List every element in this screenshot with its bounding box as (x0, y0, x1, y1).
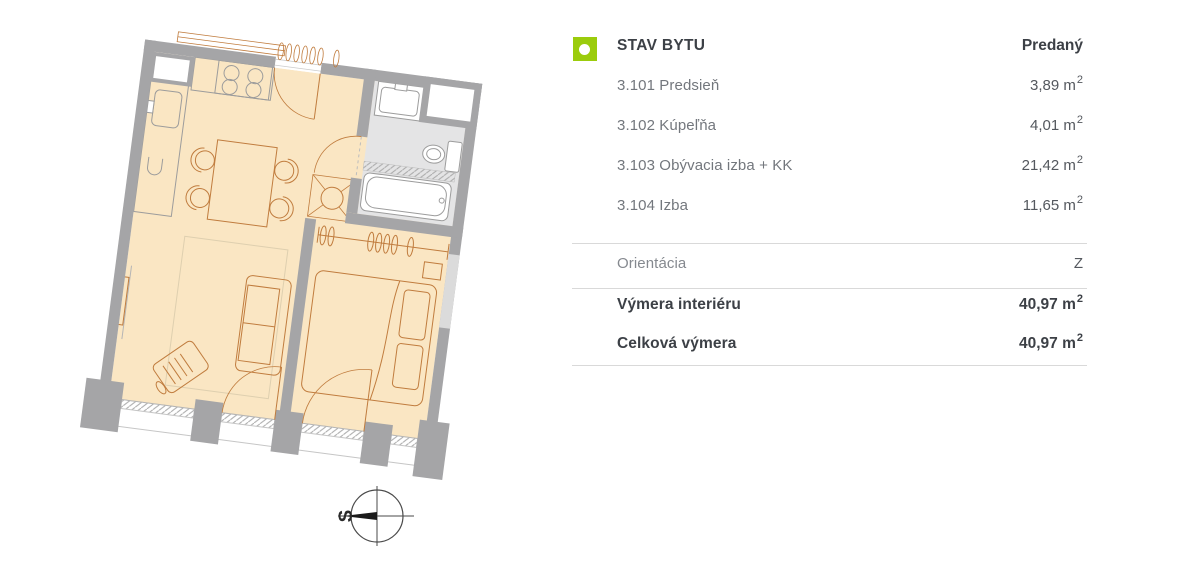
status-label: STAV BYTU (617, 37, 705, 55)
status-dot-icon (579, 44, 590, 55)
interior-area-value: 40,97 m2 (1019, 296, 1083, 314)
interior-area-label: Výmera interiéru (617, 296, 741, 314)
compass-label: S (336, 510, 357, 523)
total-area-value: 40,97 m2 (1019, 335, 1083, 353)
compass-icon: S (336, 486, 414, 546)
room-area: 21,42 m2 (1022, 157, 1083, 174)
room-label: 3.103 Obývacia izba + KK (617, 157, 792, 174)
room-area: 11,65 m2 (1023, 197, 1083, 214)
orientation-label: Orientácia (617, 255, 686, 272)
room-area: 4,01 m2 (1030, 117, 1083, 134)
status-row: STAV BYTU Predaný (617, 37, 1083, 63)
interior-area-row: Výmera interiéru 40,97 m2 (617, 296, 1083, 318)
divider (572, 243, 1087, 244)
total-area-row: Celková výmera 40,97 m2 (617, 335, 1083, 357)
room-label: 3.101 Predsieň (617, 77, 719, 94)
apartment-plan (79, 23, 496, 480)
washbasin (374, 81, 424, 121)
unit-status-icon (573, 37, 597, 61)
orientation-value: Z (1074, 255, 1083, 272)
table-row: 3.104 Izba 11,65 m2 (617, 197, 1083, 219)
divider (572, 365, 1087, 366)
total-area-label: Celková výmera (617, 335, 736, 353)
room-label: 3.102 Kúpeľňa (617, 117, 716, 134)
room-label: 3.104 Izba (617, 197, 688, 214)
status-value: Predaný (1022, 37, 1083, 55)
divider (572, 288, 1087, 289)
unit-detail-panel: STAV BYTU Predaný 3.101 Predsieň 3,89 m2… (560, 0, 1120, 560)
floorplan-image: S (0, 0, 560, 560)
table-row: 3.101 Predsieň 3,89 m2 (617, 77, 1083, 99)
orientation-row: Orientácia Z (617, 255, 1083, 277)
room-area: 3,89 m2 (1030, 77, 1083, 94)
table-row: 3.103 Obývacia izba + KK 21,42 m2 (617, 157, 1083, 179)
floorplan-svg: S (0, 0, 560, 560)
table-row: 3.102 Kúpeľňa 4,01 m2 (617, 117, 1083, 139)
